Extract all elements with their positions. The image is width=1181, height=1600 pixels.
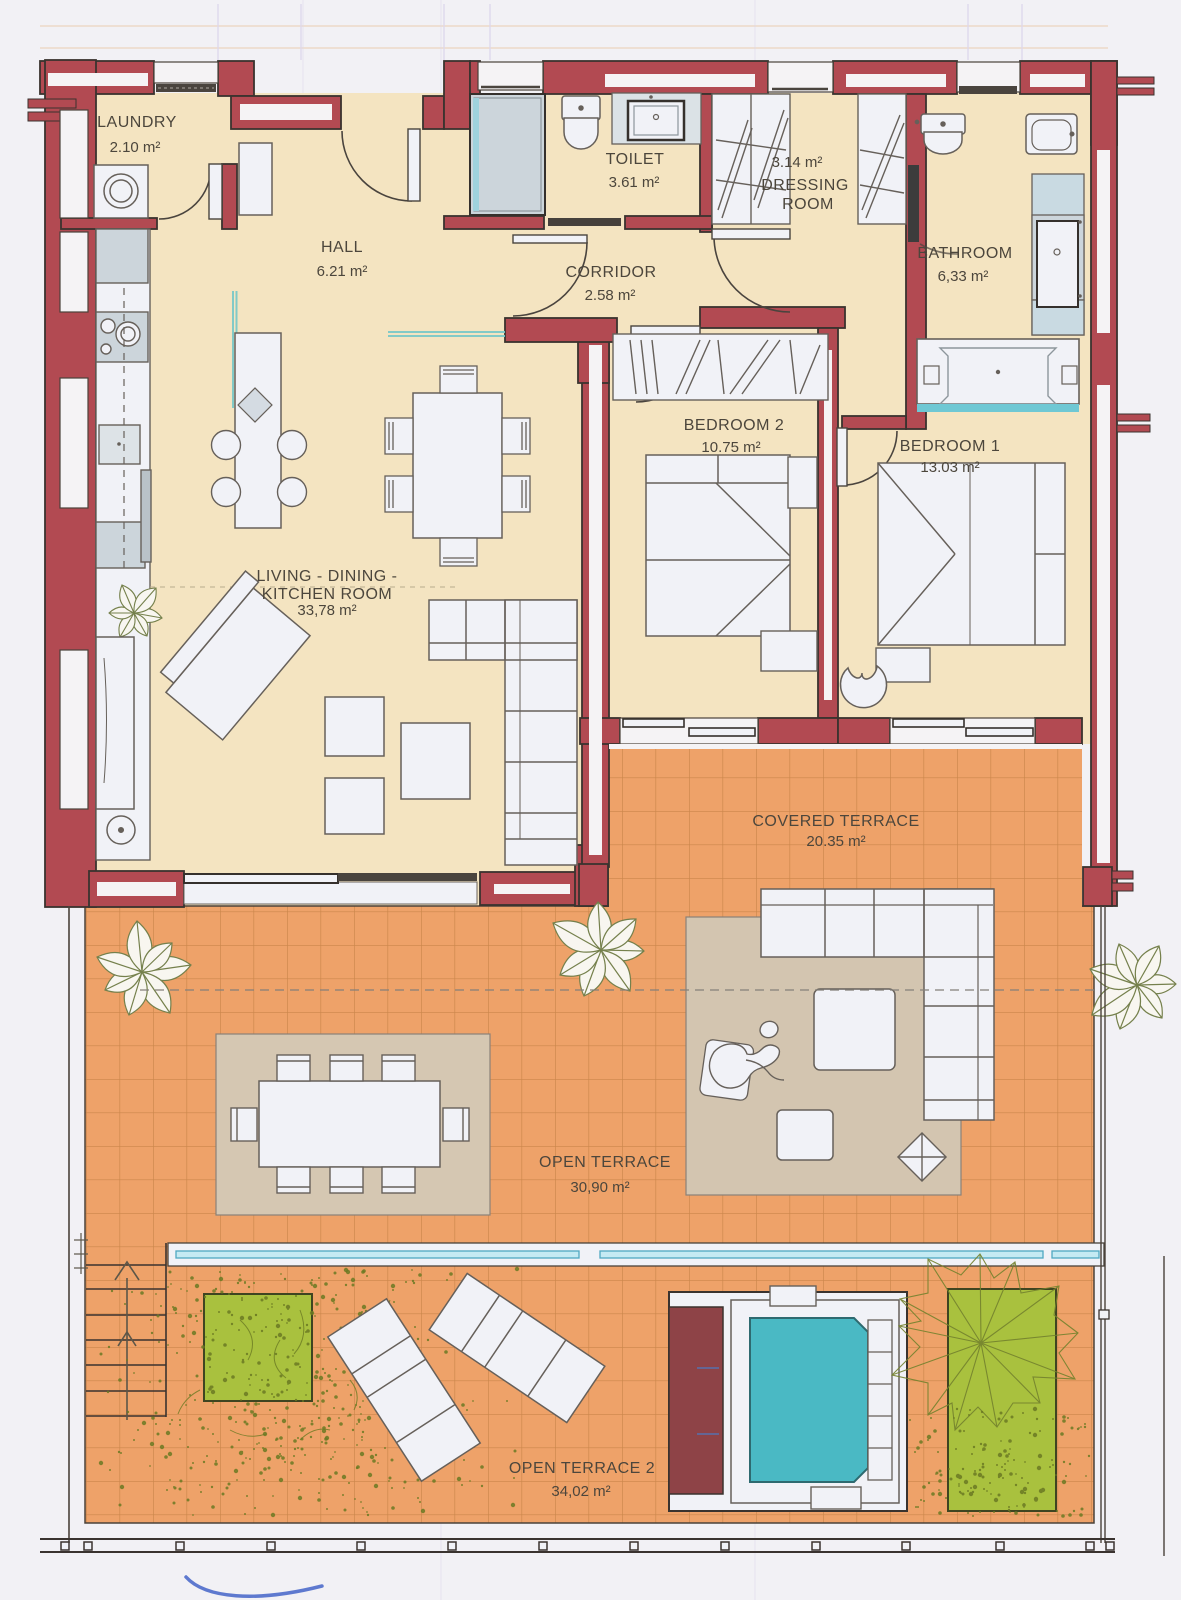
svg-text:LIVING - DINING -: LIVING - DINING -	[257, 568, 398, 585]
svg-text:BATHROOM: BATHROOM	[917, 245, 1012, 262]
svg-text:OPEN TERRACE 2: OPEN TERRACE 2	[509, 1460, 655, 1477]
svg-text:DRESSING: DRESSING	[761, 177, 849, 194]
svg-text:3.61 m²: 3.61 m²	[609, 174, 660, 191]
svg-text:KITCHEN ROOM: KITCHEN ROOM	[262, 586, 392, 603]
svg-text:2.10 m²: 2.10 m²	[110, 139, 161, 156]
svg-text:TOILET: TOILET	[606, 151, 665, 168]
svg-text:HALL: HALL	[321, 239, 363, 256]
svg-text:20.35 m²: 20.35 m²	[806, 833, 865, 850]
svg-text:6.21 m²: 6.21 m²	[317, 263, 368, 280]
svg-text:2.58 m²: 2.58 m²	[585, 287, 636, 304]
svg-text:13.03 m²: 13.03 m²	[920, 459, 979, 476]
svg-text:COVERED TERRACE: COVERED TERRACE	[752, 813, 919, 830]
svg-text:34,02 m²: 34,02 m²	[551, 1483, 610, 1500]
svg-text:3.14 m²: 3.14 m²	[772, 154, 823, 171]
svg-text:BEDROOM 2: BEDROOM 2	[684, 417, 785, 434]
svg-text:ROOM: ROOM	[782, 196, 834, 213]
svg-text:CORRIDOR: CORRIDOR	[565, 264, 656, 281]
svg-text:6,33 m²: 6,33 m²	[938, 268, 989, 285]
svg-text:10.75 m²: 10.75 m²	[701, 439, 760, 456]
svg-text:BEDROOM 1: BEDROOM 1	[900, 438, 1001, 455]
svg-text:30,90 m²: 30,90 m²	[570, 1179, 629, 1196]
svg-text:LAUNDRY: LAUNDRY	[97, 114, 177, 131]
svg-text:OPEN TERRACE: OPEN TERRACE	[539, 1154, 671, 1171]
svg-text:33,78 m²: 33,78 m²	[297, 602, 356, 619]
